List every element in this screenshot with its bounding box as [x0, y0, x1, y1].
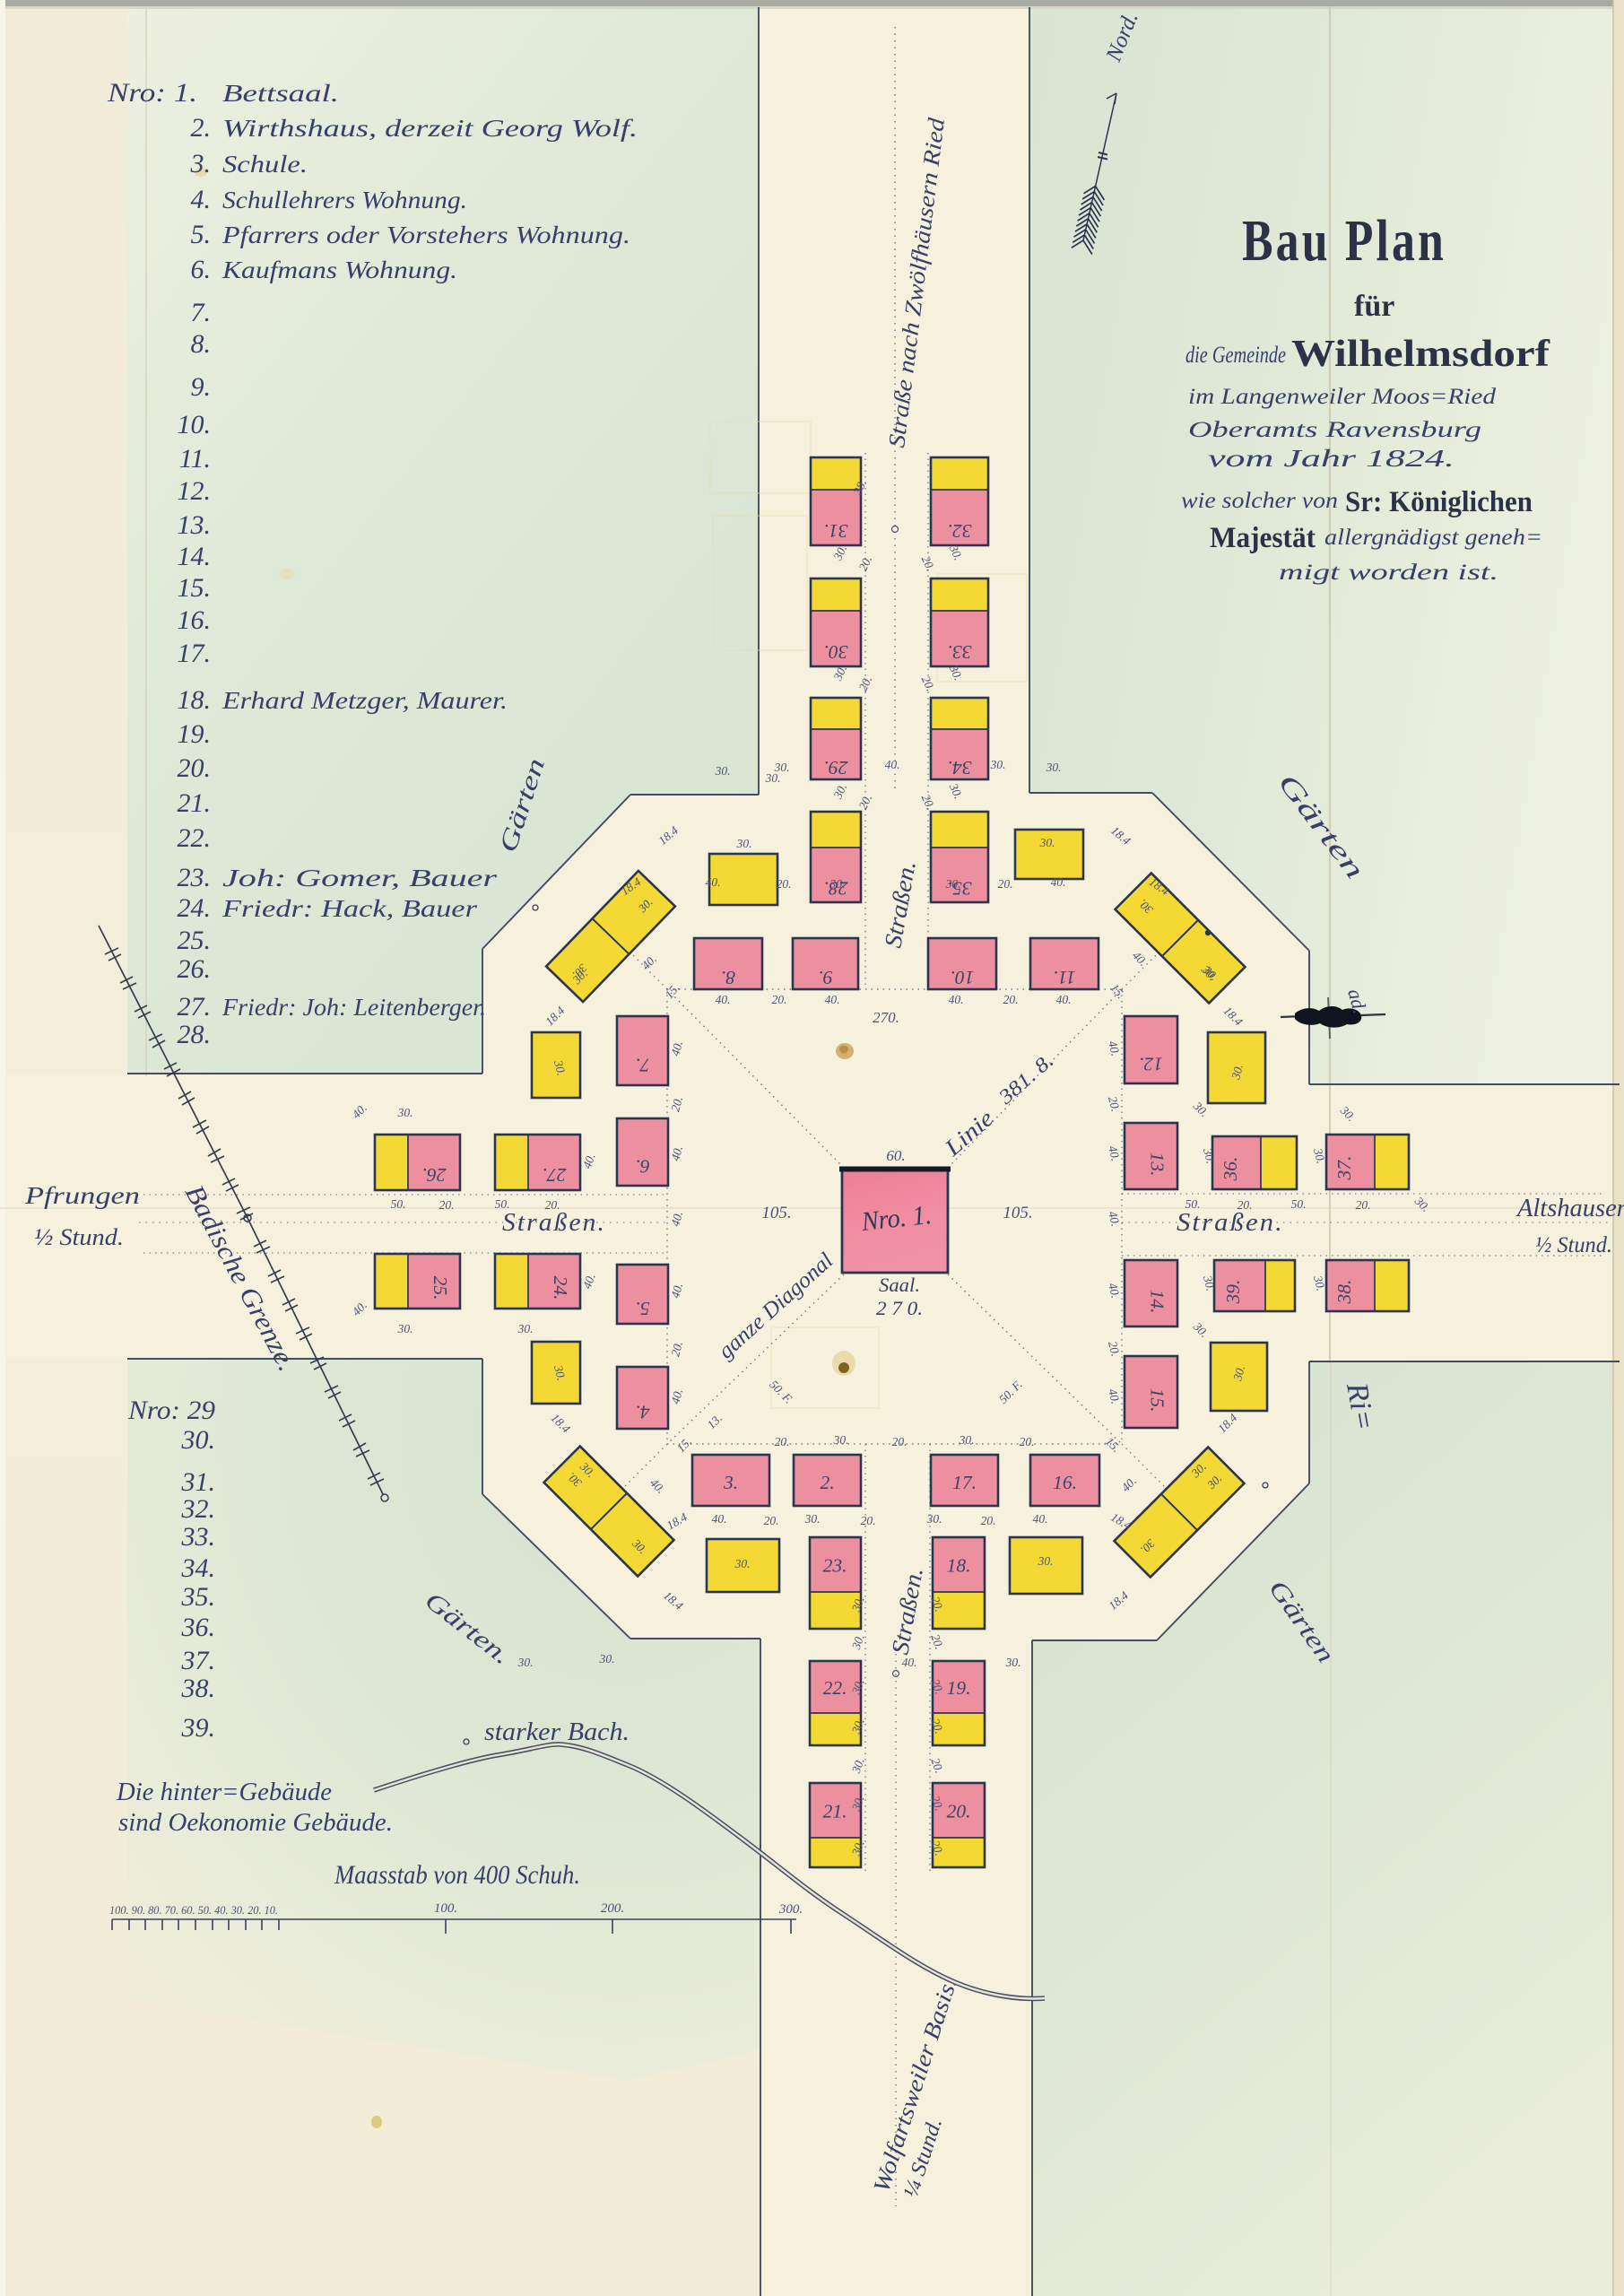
svg-text:40.: 40.	[1056, 993, 1072, 1006]
svg-text:30.: 30.	[959, 1433, 975, 1447]
svg-text:14.: 14.	[178, 542, 212, 571]
svg-text:Oberamts Ravensburg: Oberamts Ravensburg	[1188, 418, 1481, 442]
svg-text:27.: 27.	[543, 1164, 567, 1186]
svg-text:5.: 5.	[635, 1298, 649, 1319]
svg-text:35.: 35.	[181, 1582, 216, 1612]
svg-text:20.: 20.	[861, 1514, 876, 1527]
svg-text:16.: 16.	[1053, 1472, 1077, 1493]
svg-text:13.: 13.	[1147, 1152, 1168, 1177]
svg-text:2 7 0.: 2 7 0.	[876, 1297, 923, 1319]
svg-text:30.: 30.	[945, 877, 961, 891]
svg-text:24.: 24.	[550, 1276, 571, 1300]
svg-text:Bettsaal.: Bettsaal.	[222, 80, 339, 107]
svg-text:wie solcher von: wie solcher von	[1181, 489, 1338, 513]
svg-text:22.: 22.	[823, 1677, 847, 1699]
svg-text:6.: 6.	[635, 1156, 649, 1178]
svg-text:40.: 40.	[902, 1656, 917, 1669]
svg-text:8.: 8.	[191, 329, 212, 359]
svg-text:30.: 30.	[734, 1557, 751, 1570]
svg-text:33.: 33.	[948, 641, 973, 663]
svg-text:40.: 40.	[716, 993, 731, 1006]
svg-text:40.: 40.	[825, 993, 840, 1006]
svg-text:20.: 20.	[1020, 1435, 1035, 1448]
svg-text:38.: 38.	[181, 1674, 216, 1703]
svg-text:30.: 30.	[397, 1106, 413, 1119]
svg-text:½ Stund.: ½ Stund.	[1535, 1233, 1612, 1257]
svg-text:30.: 30.	[833, 1433, 849, 1447]
svg-text:10.: 10.	[951, 967, 975, 988]
svg-text:Majestät: Majestät	[1210, 522, 1316, 554]
svg-text:30.: 30.	[1046, 761, 1062, 774]
svg-text:20.: 20.	[947, 1801, 971, 1822]
svg-text:4.: 4.	[191, 185, 212, 214]
svg-text:10.: 10.	[178, 410, 212, 439]
svg-text:Straßen.: Straßen.	[1177, 1209, 1284, 1237]
svg-text:12.: 12.	[1139, 1054, 1163, 1075]
svg-text:18.: 18.	[178, 685, 212, 715]
svg-text:2.: 2.	[191, 113, 212, 143]
svg-text:30.: 30.	[1038, 1554, 1054, 1568]
svg-text:13.: 13.	[178, 510, 212, 540]
svg-text:24.: 24.	[178, 893, 212, 923]
svg-text:30.: 30.	[824, 641, 849, 663]
svg-text:25.: 25.	[430, 1276, 451, 1300]
svg-text:40.: 40.	[1051, 875, 1066, 889]
svg-text:26.: 26.	[178, 954, 212, 984]
svg-text:34.: 34.	[181, 1553, 216, 1583]
svg-text:sind Oekonomie Gebäude.: sind Oekonomie Gebäude.	[118, 1809, 393, 1837]
svg-text:11.: 11.	[1053, 967, 1075, 988]
svg-text:40.: 40.	[885, 758, 900, 771]
svg-text:19.: 19.	[178, 719, 212, 749]
svg-text:allergnädigst geneh=: allergnädigst geneh=	[1324, 526, 1542, 550]
svg-text:200.: 200.	[601, 1901, 624, 1916]
svg-text:100. 90. 80. 70. 60. 50. 40. 3: 100. 90. 80. 70. 60. 50. 40. 30. 20. 10.	[109, 1903, 278, 1917]
svg-text:5.: 5.	[191, 220, 212, 249]
svg-text:15.: 15.	[1147, 1388, 1168, 1413]
svg-text:Erhard Metzger, Maurer.: Erhard Metzger, Maurer.	[221, 687, 508, 714]
svg-text:Saal.: Saal.	[879, 1274, 920, 1296]
svg-text:30.: 30.	[599, 1652, 615, 1665]
svg-text:39.: 39.	[181, 1713, 216, 1743]
svg-text:Wirthshaus, derzeit Georg Wolf: Wirthshaus, derzeit Georg Wolf.	[222, 115, 638, 142]
svg-text:30.: 30.	[990, 758, 1006, 771]
svg-text:vom Jahr 1824.: vom Jahr 1824.	[1208, 445, 1455, 472]
svg-text:39.: 39.	[1222, 1280, 1244, 1305]
svg-text:27.: 27.	[178, 992, 212, 1022]
svg-text:Maasstab von 400 Schuh.: Maasstab von 400 Schuh.	[334, 1860, 580, 1890]
svg-text:20.: 20.	[892, 1435, 908, 1448]
svg-text:20.: 20.	[777, 877, 792, 891]
svg-text:Die hinter=Gebäude: Die hinter=Gebäude	[116, 1779, 332, 1806]
svg-text:4.: 4.	[635, 1402, 649, 1423]
svg-text:starker Bach.: starker Bach.	[484, 1718, 630, 1746]
svg-text:17.: 17.	[952, 1472, 977, 1493]
svg-text:105.: 105.	[761, 1204, 791, 1222]
svg-text:11.: 11.	[179, 444, 211, 474]
svg-text:30.: 30.	[765, 771, 781, 785]
svg-text:30.: 30.	[397, 1322, 413, 1335]
svg-text:25.: 25.	[178, 926, 212, 955]
svg-text:16.: 16.	[178, 605, 212, 635]
svg-text:Wilhelmsdorf: Wilhelmsdorf	[1291, 334, 1550, 375]
svg-text:31.: 31.	[181, 1467, 216, 1497]
svg-text:30.: 30.	[517, 1322, 534, 1335]
svg-text:28.: 28.	[178, 1020, 212, 1049]
svg-text:26.: 26.	[422, 1164, 447, 1186]
svg-text:30.: 30.	[736, 837, 752, 850]
svg-text:50.: 50.	[391, 1197, 406, 1211]
svg-text:300.: 300.	[778, 1902, 803, 1917]
svg-text:30.: 30.	[804, 1512, 821, 1526]
svg-text:30.: 30.	[926, 1512, 942, 1526]
svg-text:15.: 15.	[178, 573, 212, 603]
svg-text:17.: 17.	[178, 639, 212, 668]
svg-text:20.: 20.	[439, 1198, 455, 1212]
svg-text:½ Stund.: ½ Stund.	[34, 1224, 124, 1250]
svg-text:40.: 40.	[1033, 1512, 1048, 1526]
svg-text:40.: 40.	[949, 993, 964, 1006]
svg-text:3.: 3.	[723, 1472, 738, 1493]
svg-text:7.: 7.	[191, 298, 212, 327]
svg-text:20.: 20.	[772, 993, 787, 1006]
svg-text:Schullehrers Wohnung.: Schullehrers Wohnung.	[222, 187, 467, 213]
svg-text:9.: 9.	[818, 967, 832, 988]
svg-text:7.: 7.	[635, 1055, 649, 1076]
svg-text:30.: 30.	[181, 1425, 216, 1455]
svg-text:40.: 40.	[706, 875, 721, 889]
svg-text:30.: 30.	[829, 877, 846, 891]
svg-text:für: für	[1354, 290, 1394, 323]
svg-text:20.: 20.	[764, 1514, 779, 1527]
svg-text:21.: 21.	[178, 788, 212, 818]
svg-text:3.: 3.	[190, 149, 212, 178]
svg-text:6.: 6.	[191, 255, 212, 284]
svg-text:105.: 105.	[1003, 1204, 1032, 1222]
svg-text:100.: 100.	[434, 1901, 457, 1916]
svg-text:Friedr: Hack, Bauer: Friedr: Hack, Bauer	[221, 895, 478, 922]
svg-text:Straßen.: Straßen.	[502, 1209, 606, 1237]
svg-text:36.: 36.	[1220, 1157, 1241, 1182]
svg-text:Kaufmans Wohnung.: Kaufmans Wohnung.	[221, 257, 457, 283]
svg-text:Pfarrers oder Vorstehers Wohnu: Pfarrers oder Vorstehers Wohnung.	[221, 222, 630, 248]
svg-text:die Gemeinde: die Gemeinde	[1185, 342, 1286, 368]
svg-text:2.: 2.	[820, 1472, 834, 1493]
svg-text:Sr: Königlichen: Sr: Königlichen	[1345, 486, 1533, 518]
svg-text:270.: 270.	[873, 1009, 899, 1026]
svg-text:20.: 20.	[998, 877, 1013, 891]
svg-text:Nro: 29: Nro: 29	[127, 1396, 215, 1425]
svg-text:30.: 30.	[1039, 836, 1055, 849]
svg-text:37.: 37.	[181, 1646, 216, 1675]
svg-text:Schule.: Schule.	[222, 151, 308, 178]
svg-text:32.: 32.	[948, 520, 973, 542]
svg-text:im Langenweiler Moos=Ried: im Langenweiler Moos=Ried	[1188, 385, 1497, 409]
svg-text:Friedr: Joh: Leitenberger.: Friedr: Joh: Leitenberger.	[221, 994, 486, 1021]
svg-text:20.: 20.	[1356, 1198, 1371, 1212]
svg-text:23.: 23.	[823, 1555, 847, 1577]
svg-text:20.: 20.	[775, 1435, 790, 1448]
svg-text:18.: 18.	[947, 1555, 971, 1577]
svg-text:31.: 31.	[824, 520, 849, 542]
svg-text:21.: 21.	[823, 1801, 847, 1822]
svg-text:20.: 20.	[981, 1514, 996, 1527]
svg-text:migt worden ist.: migt worden ist.	[1279, 561, 1498, 585]
svg-text:32.: 32.	[181, 1494, 216, 1524]
svg-text:34.: 34.	[948, 757, 973, 778]
svg-text:38.: 38.	[1333, 1280, 1355, 1305]
svg-text:30.: 30.	[517, 1656, 534, 1669]
svg-text:50.: 50.	[1291, 1197, 1307, 1211]
svg-text:9.: 9.	[191, 372, 212, 402]
svg-text:8.: 8.	[721, 967, 735, 988]
svg-text:22.: 22.	[178, 823, 212, 853]
svg-text:20.: 20.	[1003, 993, 1019, 1006]
svg-text:19.: 19.	[947, 1677, 971, 1699]
svg-text:29.: 29.	[824, 757, 848, 778]
svg-text:30.: 30.	[715, 764, 731, 778]
svg-text:23.: 23.	[178, 863, 212, 892]
svg-text:40.: 40.	[712, 1512, 727, 1526]
svg-text:14.: 14.	[1147, 1290, 1168, 1314]
svg-text:Bau Plan: Bau Plan	[1242, 208, 1446, 274]
svg-text:Altshausen: Altshausen	[1515, 1195, 1624, 1222]
svg-text:30.: 30.	[1005, 1656, 1021, 1669]
svg-text:33.: 33.	[181, 1522, 216, 1552]
svg-text:36.: 36.	[181, 1613, 216, 1642]
svg-text:12.: 12.	[178, 476, 212, 506]
svg-text:60.: 60.	[886, 1147, 905, 1164]
svg-text:37.: 37.	[1333, 1156, 1355, 1181]
svg-text:Pfrungen: Pfrungen	[24, 1182, 140, 1209]
svg-text:20.: 20.	[178, 753, 212, 783]
svg-text:Nro: 1.: Nro: 1.	[107, 78, 197, 108]
svg-text:Joh: Gomer, Bauer: Joh: Gomer, Bauer	[222, 865, 498, 891]
